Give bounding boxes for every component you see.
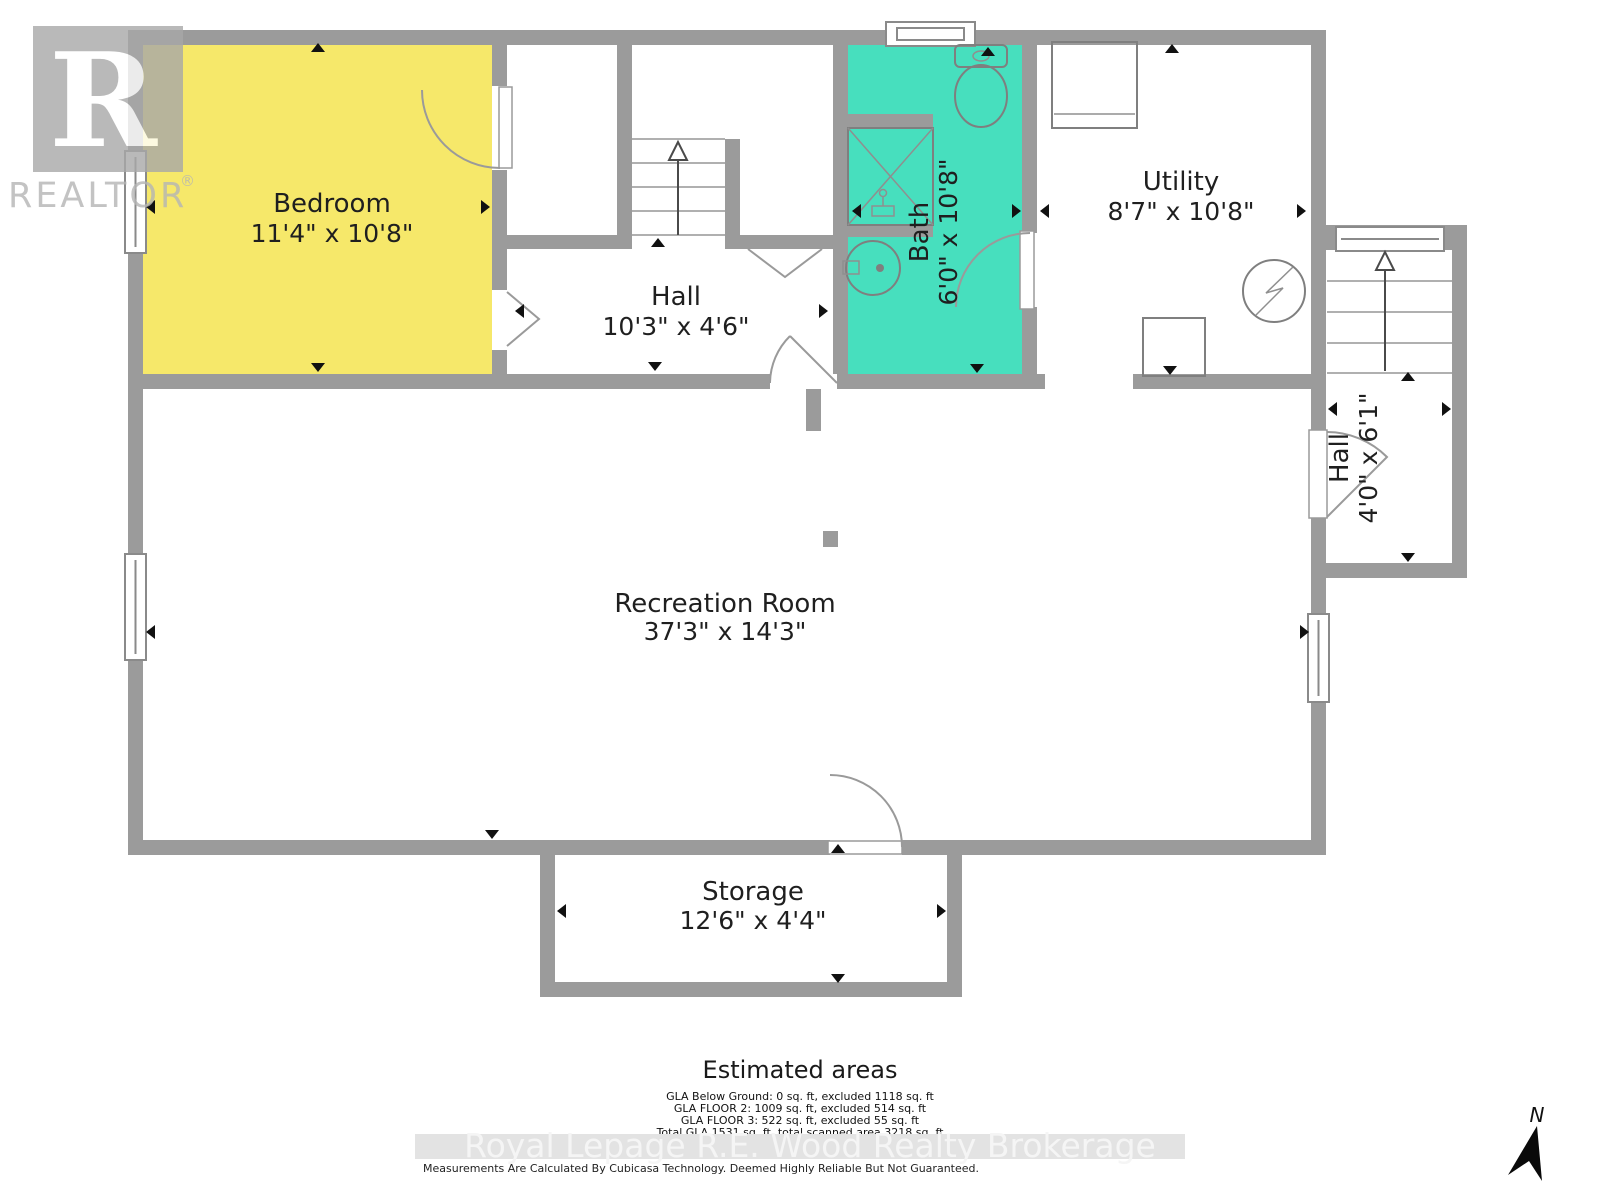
floor-plan-canvas: Bedroom 11'4" x 10'8" Hall 10'3" x 4'6" … (0, 0, 1600, 1200)
bath-door-leaf (1020, 231, 1034, 309)
realtor-logo-letter: R (49, 24, 158, 177)
hall-bifold-door (748, 249, 822, 277)
stairs-right-icon (1327, 252, 1452, 373)
utility-dims: 8'7" x 10'8" (1108, 197, 1255, 226)
storage-dims: 12'6" x 4'4" (680, 906, 827, 935)
right-hall-dims: 4'0" x 6'1" (1354, 392, 1383, 523)
electrical-panel-icon (1243, 260, 1305, 322)
bedroom-dims: 11'4" x 10'8" (251, 219, 414, 248)
registered-mark-icon: ® (180, 172, 195, 190)
hall-door-leaf (790, 336, 837, 383)
realtor-logo-text: REALTOR (8, 176, 187, 216)
north-label: N (1530, 1103, 1545, 1127)
washer-icon (1052, 42, 1137, 128)
stairs-up-icon (632, 139, 725, 235)
north-arrow-icon (1508, 1126, 1542, 1181)
right-hall-label: Hall (1325, 433, 1355, 483)
hall-door-arc (770, 336, 790, 383)
storage-door-arc (830, 775, 902, 847)
storage-label: Storage (702, 877, 804, 907)
realtor-logo: R REALTOR ® (8, 24, 195, 216)
bath-dims: 6'0" x 10'8" (934, 159, 963, 306)
bedroom-door-leaf (499, 87, 512, 168)
floor-plan-page: Bedroom 11'4" x 10'8" Hall 10'3" x 4'6" … (0, 0, 1600, 1200)
bedroom-label: Bedroom (273, 189, 391, 219)
disclaimer-text: Measurements Are Calculated By Cubicasa … (423, 1162, 979, 1175)
estimated-areas-title: Estimated areas (703, 1056, 898, 1084)
north-compass: N (1508, 1103, 1545, 1181)
hall-dims: 10'3" x 4'6" (603, 312, 750, 341)
utility-label: Utility (1143, 167, 1219, 197)
bedroom-bifold-door (507, 292, 539, 346)
watermark-text: Royal Lepage R.E. Wood Realty Brokerage (464, 1126, 1156, 1165)
recreation-dims: 37'3" x 14'3" (644, 617, 807, 646)
bath-label: Bath (905, 202, 935, 262)
brokerage-watermark: Royal Lepage R.E. Wood Realty Brokerage (415, 1126, 1185, 1165)
hall-label: Hall (651, 282, 701, 312)
recreation-label: Recreation Room (614, 589, 835, 619)
bedroom-bifold-gap (492, 290, 507, 350)
